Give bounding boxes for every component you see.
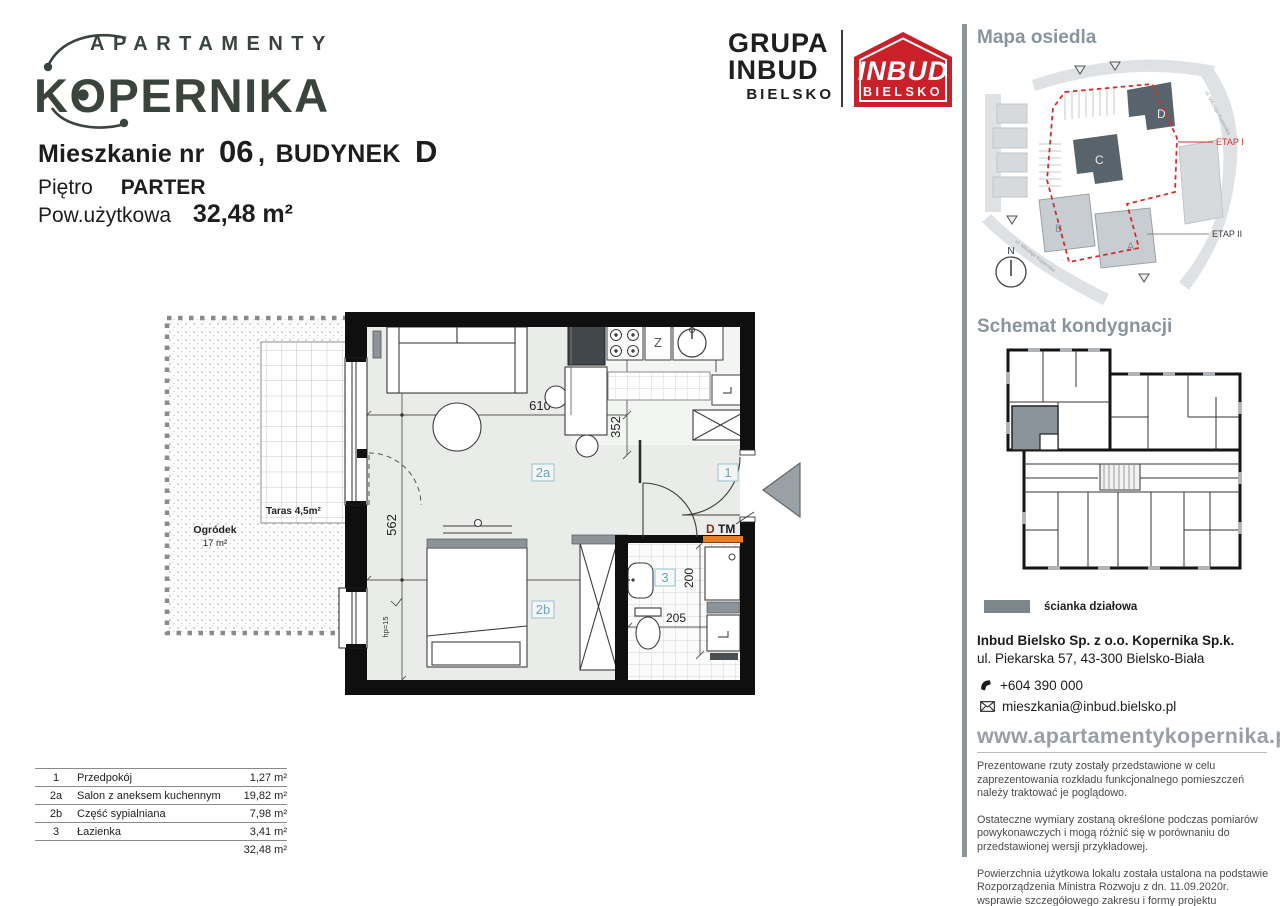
contact-block: +604 390 000 mieszkania@inbud.bielsko.pl [980,676,1176,718]
table-total-row: 32,48 m² [35,840,287,858]
area-table: 1 Przedpokój 1,27 m² 2a Salon z aneksem … [35,768,287,858]
row-number: 2b [35,808,77,820]
tm-annotation: TM [718,522,735,536]
grupa-line3: BIELSKO [728,86,834,103]
wardrobe-tall [580,543,617,670]
legend-label: ścianka działowa [1044,601,1137,613]
entrance-arrow-icon [763,463,800,517]
dim-205: 205 [666,611,686,625]
building-c-label: C [1095,153,1104,167]
email-icon [980,701,995,712]
sofa [387,327,527,393]
legend: ścianka działowa [984,600,1137,613]
comma: , [258,140,265,168]
company-name: Inbud Bielsko Sp. z o.o. Kopernika Sp.k. [977,632,1269,650]
row-name: Salon z aneksem kuchennym [77,790,225,802]
apartment-title: Mieszkanie nr 06 , BUDYNEK D [38,134,437,170]
dim-562: 562 [384,514,399,536]
window-height-label: hp=15 [381,616,390,637]
row-area: 3,41 m² [225,826,287,838]
logo-word-apartamenty: APARTAMENTY [90,33,334,55]
row-number: 2a [35,790,77,802]
logo-word-kopernika: KOPERNIKA [34,69,330,122]
phone-icon [980,679,993,692]
headboard-partition [427,539,527,548]
fridge [568,325,605,365]
company-address: ul. Piekarska 57, 43-300 Bielsko-Biała [977,650,1269,668]
bielsko-wordmark: BIELSKO [863,85,943,99]
bath-dark-cabinet [710,653,738,660]
row-name: Łazienka [77,826,225,838]
grupa-line2: INBUD [728,57,834,84]
email-row[interactable]: mieszkania@inbud.bielsko.pl [980,697,1176,716]
phone-row[interactable]: +604 390 000 [980,676,1176,695]
area-row: Pow.użytkowa 32,48 m² [38,200,293,229]
inbud-bielsko-logo: INBUD BIELSKO [852,30,954,109]
garden-label: Ogródek [193,524,236,536]
floor-schematic [988,342,1260,582]
phone-number[interactable]: +604 390 000 [1000,676,1083,695]
table-row: 3 Łazienka 3,41 m² [35,822,287,840]
wardrobe-kitchen [693,410,748,440]
panel-divider [977,752,1267,753]
stove [607,325,643,360]
sink-symbol: Z [654,335,662,350]
panel-vertical-bar [962,24,967,857]
schema-title: Schemat kondygnacji [977,316,1172,338]
partition-wall-swatch [984,600,1030,613]
round-table [433,403,481,451]
dim-node [400,413,403,416]
unit-hall-notch [1040,434,1058,450]
building-a-label: A [1127,241,1135,253]
room-label-2a: 2a [536,465,551,480]
compass-n: N [1007,246,1014,257]
kitchen-counter [608,372,710,400]
table-row: 1 Przedpokój 1,27 m² [35,768,287,786]
terrace: Taras 4,5m² [261,342,352,523]
map-title: Mapa osiedla [977,27,1096,49]
etap1-label: ETAP I [1216,137,1244,147]
building-label: BUDYNEK [276,140,401,168]
building-d [1127,82,1175,130]
garden-area-value: 17 m² [203,538,227,549]
building-a [1095,208,1156,268]
row-name: Przedpokój [77,772,225,784]
table-row: 2a Salon z aneksem kuchennym 19,82 m² [35,786,287,804]
brochure-page: APARTAMENTY KOPERNIKA Mieszkanie nr 06 ,… [0,0,1280,906]
disclaimer-block: Prezentowane rzuty zostały przedstawione… [977,760,1270,906]
inbud-wordmark: INBUD [858,56,949,86]
electrical-board-marker [703,536,743,543]
table-row: 2b Część sypialniana 7,98 m² [35,804,287,822]
website-link[interactable]: www.apartamentykopernika.pl [977,724,1280,749]
shower [705,547,740,600]
floor-value: PARTER [121,176,206,199]
etap2-label: ETAP II [1212,229,1242,239]
room-label-3: 3 [661,570,668,585]
grupa-inbud-logo: GRUPA INBUD BIELSKO [728,30,834,103]
balcony-window [345,358,367,505]
floor-label: Piętro [38,176,93,199]
estate-map: D C B A ETAP I ETAP II N ul. Mikołaja Ko… [977,52,1269,310]
grupa-line1: GRUPA [728,30,834,57]
building-letter: D [415,134,437,169]
kopernika-logo: APARTAMENTY KOPERNIKA [28,16,358,138]
floor-plan: Ogródek 17 m² Taras 4,5m² [160,305,810,700]
usable-area-label: Pow.użytkowa [38,204,171,227]
total-area: 32,48 m² [225,844,287,856]
logo-divider [841,30,843,107]
building-b [1039,194,1095,252]
dim-352: 352 [608,416,623,438]
floor-row: Piętro PARTER [38,176,205,200]
row-number: 3 [35,826,77,838]
toilet [635,608,661,649]
apartment-label: Mieszkanie nr [38,140,205,168]
radiator [373,331,381,358]
room-label-2b: 2b [536,602,550,617]
row-area: 1,27 m² [225,772,287,784]
bath-shelf-partition [707,602,740,613]
washing-machine [707,615,740,651]
email-address[interactable]: mieszkania@inbud.bielsko.pl [1002,697,1176,716]
building-d-label: D [1157,107,1166,121]
row-area: 19,82 m² [225,790,287,802]
building-b-label: B [1055,223,1062,235]
disclaimer-1: Prezentowane rzuty zostały przedstawione… [977,760,1270,801]
row-number: 1 [35,772,77,784]
dim-200: 200 [682,568,696,588]
terrace-label: Taras 4,5m² [266,506,322,517]
disclaimer-3: Powierzchnia użytkowa lokalu została ust… [977,868,1270,906]
bedroom-window [339,588,367,648]
usable-area-value: 32,48 m² [193,200,293,228]
dim-node [400,578,403,581]
disclaimer-2: Ostateczne wymiary zostaną określone pod… [977,814,1270,855]
d-annotation: D [706,522,715,536]
schematic-stairs [1100,464,1140,490]
company-info: Inbud Bielsko Sp. z o.o. Kopernika Sp.k.… [977,632,1269,668]
apartment-number: 06 [219,134,253,169]
row-name: Część sypialniana [77,808,225,820]
room-label-1: 1 [724,465,731,480]
row-area: 7,98 m² [225,808,287,820]
